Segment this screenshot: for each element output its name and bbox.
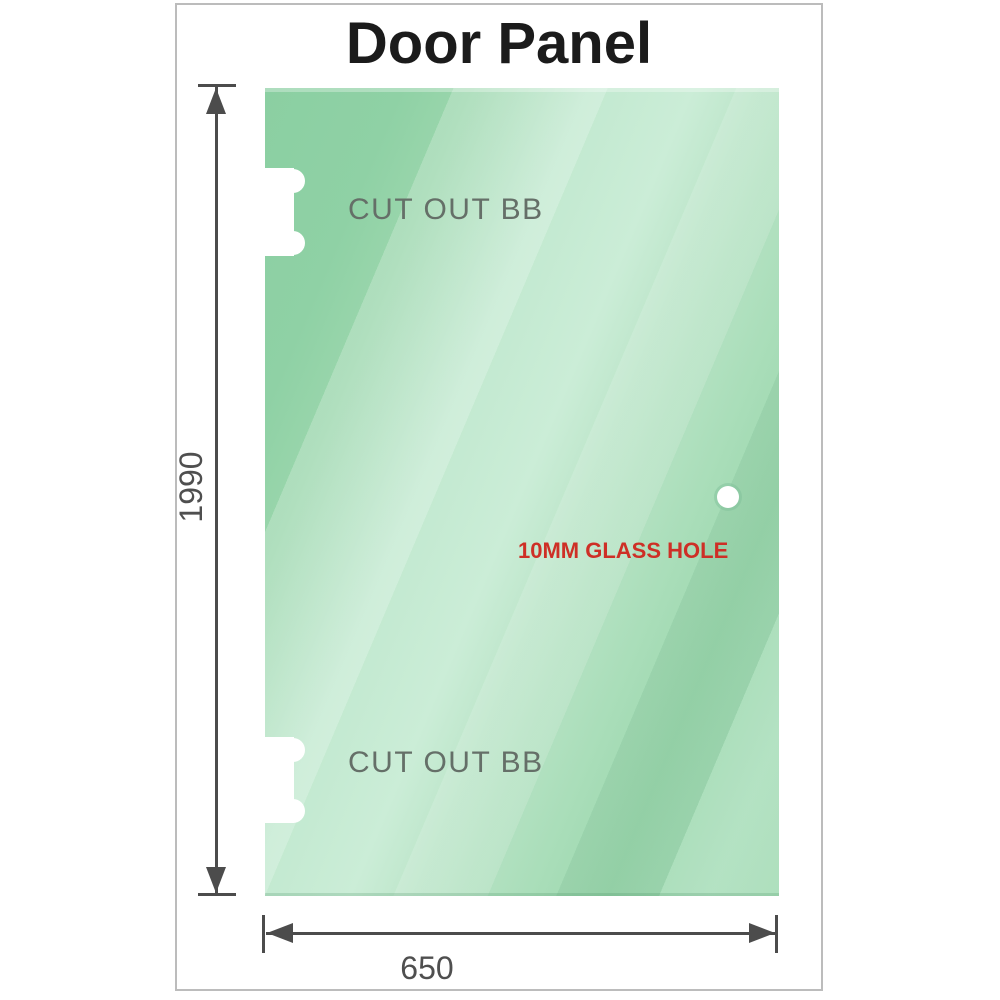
arrow-up-icon [206,88,226,114]
width-dimension-label: 650 [357,950,497,987]
glass-hole [717,486,739,508]
cutout-bottom-label: CUT OUT BB [348,746,544,780]
cutout-top-label: CUT OUT BB [348,193,544,227]
diagram-canvas: Door Panel CUT OUT BB CUT OUT BB 10MM GL… [0,0,1000,1000]
dimension-cap-bottom [198,893,236,896]
dimension-cap-left [262,915,265,953]
arrow-down-icon [206,867,226,893]
arrow-right-icon [749,923,775,943]
page-title: Door Panel [175,12,823,76]
cutout-bottom-rect [265,737,294,823]
dimension-line-horizontal [266,932,776,935]
dimension-cap-right [775,915,778,953]
arrow-left-icon [267,923,293,943]
height-dimension-label: 1990 [171,417,211,557]
dimension-line-vertical [215,87,218,894]
cutout-top-rect [265,168,294,256]
glass-hole-label: 10MM GLASS HOLE [518,538,728,564]
